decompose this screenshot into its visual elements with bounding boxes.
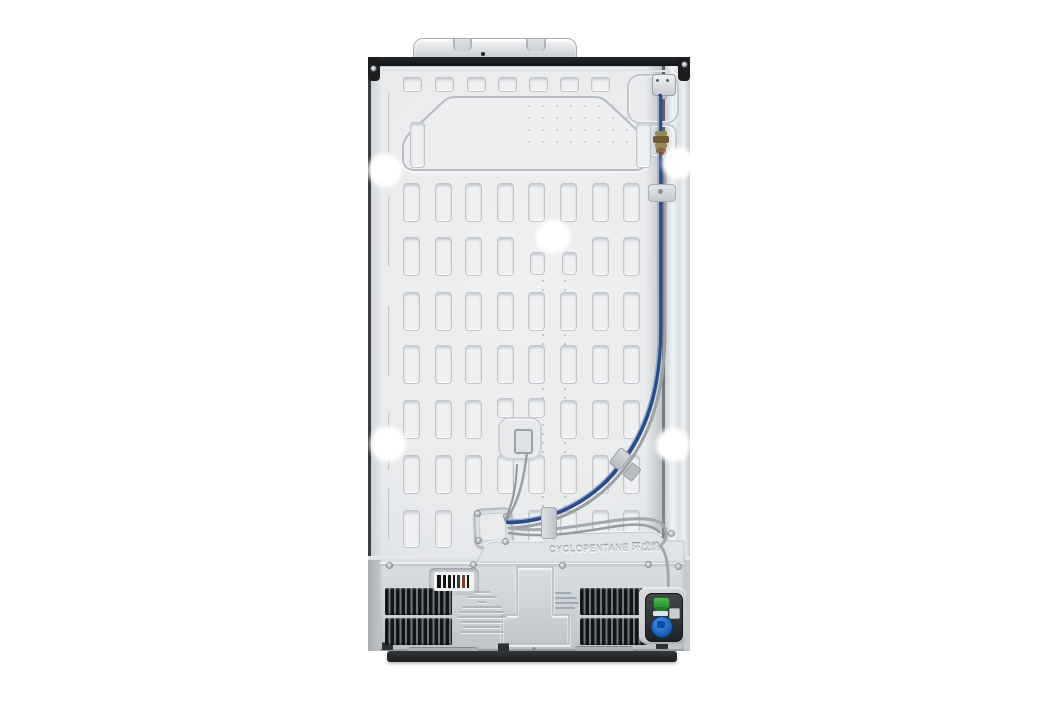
top-groove bbox=[382, 70, 667, 72]
water-valve-hub bbox=[657, 621, 665, 628]
brass-connector-seal bbox=[659, 152, 664, 155]
vent-slot bbox=[465, 183, 482, 222]
center-boss-slot bbox=[514, 429, 533, 454]
valve-side-tab bbox=[669, 608, 680, 619]
vent-slot bbox=[592, 237, 609, 276]
top-cover-notch bbox=[453, 39, 472, 51]
vent-slot-top bbox=[403, 77, 422, 92]
screw bbox=[471, 562, 476, 567]
vent-slot bbox=[403, 345, 420, 384]
etched-text-line bbox=[474, 591, 490, 593]
etched-text-line bbox=[477, 601, 487, 603]
ventilation-grille-left bbox=[385, 588, 452, 645]
vent-slot bbox=[497, 345, 514, 384]
tube-clip-hole bbox=[658, 189, 663, 194]
corner-bracket-right bbox=[678, 57, 690, 81]
left-edge bbox=[368, 66, 371, 558]
vent-slot bbox=[497, 292, 514, 331]
vent-slot bbox=[623, 292, 640, 331]
top-rail bbox=[368, 57, 690, 66]
vent-slot bbox=[560, 400, 577, 439]
perforation-dots bbox=[522, 100, 634, 152]
knockout-hole bbox=[665, 150, 691, 176]
grille-band bbox=[580, 618, 647, 645]
knockout-hole bbox=[659, 431, 687, 459]
grille-band bbox=[385, 588, 452, 615]
barcode-bar bbox=[448, 575, 451, 588]
panel-groove bbox=[388, 196, 390, 266]
vent-slot bbox=[530, 252, 545, 275]
grille-band bbox=[580, 588, 647, 615]
screw bbox=[504, 514, 509, 519]
vent-slot bbox=[403, 183, 420, 222]
etched-text-line bbox=[457, 616, 507, 618]
vent-slot bbox=[410, 122, 425, 168]
vent-slot bbox=[592, 400, 609, 439]
vent-slot bbox=[435, 183, 452, 222]
vent-slot bbox=[528, 398, 545, 418]
screw bbox=[560, 563, 565, 568]
barcode-bar bbox=[467, 575, 469, 588]
vent-slot bbox=[528, 292, 545, 331]
etched-text-line bbox=[461, 621, 503, 623]
notice-text-line bbox=[555, 592, 571, 594]
screw bbox=[669, 531, 674, 536]
vent-slot-top bbox=[560, 77, 579, 92]
etched-text-line bbox=[459, 611, 505, 613]
vent-slot bbox=[435, 237, 452, 276]
screw bbox=[676, 564, 681, 569]
vent-slot bbox=[497, 183, 514, 222]
vent-slot-top bbox=[467, 77, 486, 92]
vent-slot bbox=[435, 292, 452, 331]
base-plinth bbox=[387, 651, 677, 662]
vent-slot bbox=[435, 400, 452, 439]
vent-slot bbox=[592, 183, 609, 222]
panel-groove bbox=[388, 488, 390, 540]
tube-clip bbox=[541, 507, 557, 539]
vent-slot bbox=[465, 292, 482, 331]
screw bbox=[476, 538, 481, 543]
drain-access-plate-inner bbox=[478, 512, 506, 541]
notice-text-line bbox=[555, 602, 579, 604]
ventilation-grille-right bbox=[580, 588, 647, 645]
vent-slot-top bbox=[435, 77, 454, 92]
vent-slot bbox=[497, 237, 514, 276]
vent-slot bbox=[465, 237, 482, 276]
etched-text-line bbox=[464, 626, 500, 628]
barcode-bar bbox=[437, 575, 441, 588]
barcode-bar bbox=[443, 575, 446, 588]
vent-slot bbox=[435, 510, 452, 548]
rating-plate-etched-text bbox=[454, 591, 510, 641]
screw bbox=[371, 66, 376, 71]
vent-slot bbox=[465, 345, 482, 384]
etched-text-line bbox=[462, 606, 502, 608]
etched-text-line bbox=[467, 596, 497, 598]
flange-bolt bbox=[656, 79, 659, 82]
top-cover-notch bbox=[526, 39, 546, 51]
panel-groove bbox=[388, 92, 390, 154]
vent-slot bbox=[560, 183, 577, 222]
vent-slot bbox=[497, 455, 514, 494]
vent-slot bbox=[403, 237, 420, 276]
flange-bolt bbox=[666, 79, 669, 82]
vent-slot bbox=[528, 183, 545, 222]
vent-slot bbox=[562, 252, 577, 275]
top-cover-bolt bbox=[481, 52, 485, 56]
vent-slot bbox=[623, 345, 640, 384]
vent-slot bbox=[560, 455, 577, 494]
grille-band bbox=[385, 618, 452, 645]
vent-slot-top bbox=[529, 77, 548, 92]
screw bbox=[387, 563, 392, 568]
vent-slot bbox=[403, 400, 420, 439]
vent-slot bbox=[403, 455, 420, 494]
vent-slot bbox=[623, 237, 640, 276]
notice-text-line bbox=[555, 597, 577, 599]
vent-slot bbox=[528, 455, 545, 494]
brass-connector bbox=[653, 136, 669, 143]
vent-slot bbox=[497, 398, 514, 418]
barcode-bar bbox=[462, 575, 465, 588]
vent-slot bbox=[403, 510, 420, 548]
notice-etched-text bbox=[555, 592, 581, 614]
etched-text-line bbox=[460, 631, 504, 633]
vent-slot bbox=[560, 292, 577, 331]
screw bbox=[475, 511, 480, 516]
screw bbox=[503, 539, 508, 544]
water-inlet-flange bbox=[652, 74, 676, 96]
vent-slot-top bbox=[591, 77, 610, 92]
barcode-bar bbox=[453, 575, 455, 588]
vent-slot bbox=[465, 400, 482, 439]
barcode-bar bbox=[457, 575, 460, 588]
vent-slot bbox=[528, 345, 545, 384]
notice-text-line bbox=[555, 607, 575, 609]
vent-slot bbox=[465, 455, 482, 494]
vent-slot bbox=[592, 292, 609, 331]
knockout-hole bbox=[539, 223, 567, 251]
refrigerator-back-photo: CYCLOPENTANE 环戊烷 bbox=[0, 0, 1059, 704]
vent-slot bbox=[623, 183, 640, 222]
vent-slot bbox=[636, 122, 651, 168]
panel-groove bbox=[388, 306, 390, 376]
screw bbox=[682, 62, 687, 67]
vent-slot-top bbox=[498, 77, 517, 92]
knockout-hole bbox=[371, 156, 399, 184]
vent-slot bbox=[435, 345, 452, 384]
screw bbox=[646, 562, 651, 567]
vent-slot bbox=[592, 345, 609, 384]
vent-slot bbox=[623, 400, 640, 439]
barcode-label bbox=[434, 572, 474, 591]
vent-slot bbox=[592, 455, 609, 494]
knockout-hole bbox=[373, 429, 403, 459]
vent-slot bbox=[435, 455, 452, 494]
vent-slot bbox=[560, 345, 577, 384]
vent-slot bbox=[403, 292, 420, 331]
